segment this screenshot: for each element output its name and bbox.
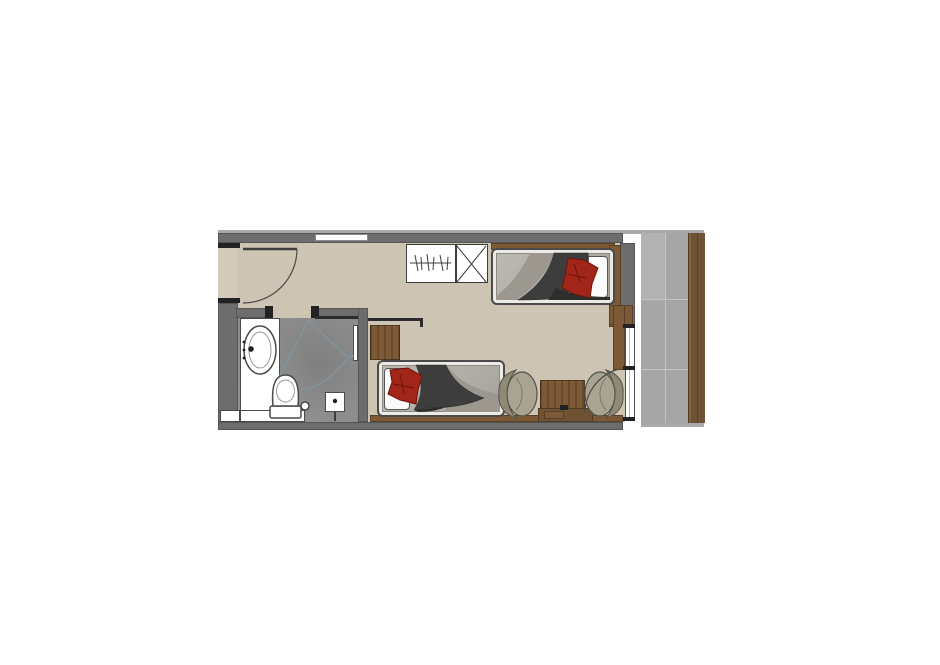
entry-door	[243, 249, 297, 303]
toilet	[270, 375, 301, 418]
armchair-right	[585, 370, 623, 418]
shower-head-detail	[333, 399, 337, 421]
floor-drain	[301, 402, 309, 410]
page: { "document": { "kind": "hotel-room-floo…	[0, 0, 940, 665]
bed-2-cushion	[388, 368, 422, 404]
sink	[243, 326, 276, 374]
floor-plan	[218, 230, 705, 430]
shelf-cross	[457, 246, 486, 282]
faucet	[248, 346, 254, 352]
bed-2-blanket	[414, 365, 500, 412]
wardrobe-contents	[410, 246, 486, 282]
armchair-left	[499, 370, 537, 418]
plan-detail-overlay	[218, 230, 705, 430]
